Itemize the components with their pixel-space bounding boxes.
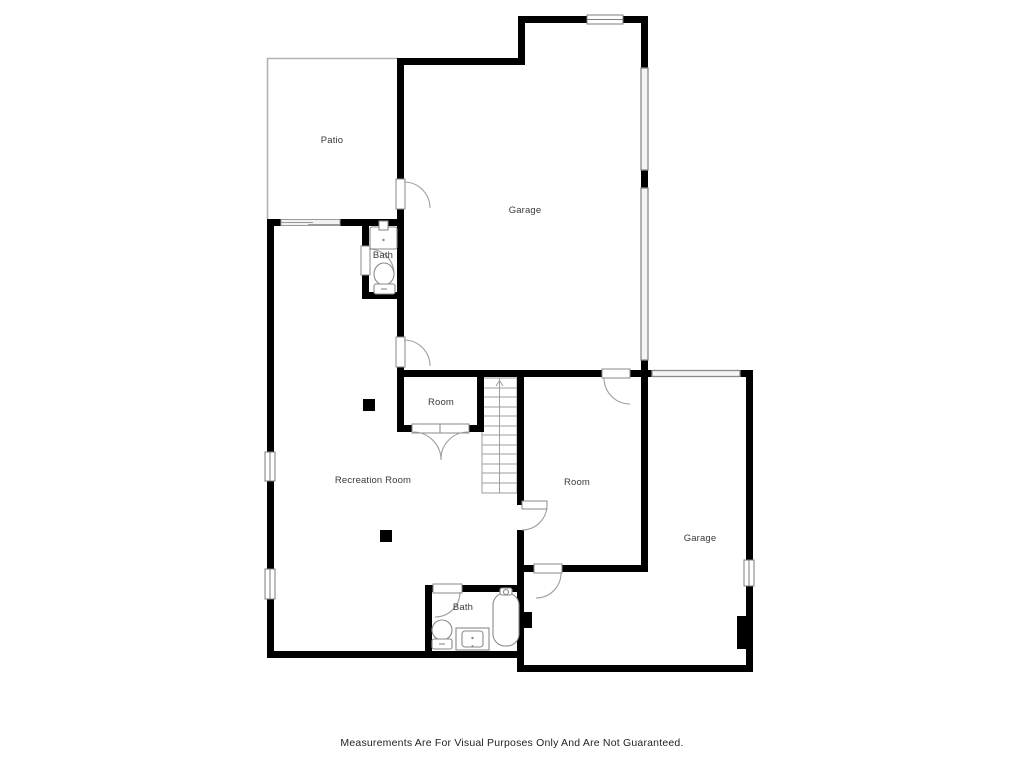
bath-pilaster bbox=[524, 612, 532, 628]
double-door-room-center bbox=[412, 424, 469, 460]
door-room-lower-top bbox=[602, 369, 630, 404]
door-garage-upper-1 bbox=[396, 179, 430, 209]
garage-door-upper-right-2 bbox=[641, 188, 648, 360]
bathtub-icon bbox=[493, 588, 519, 646]
bath-lower-label: Bath bbox=[453, 602, 473, 613]
walls bbox=[267, 16, 753, 672]
window-garage-lower-right bbox=[744, 560, 754, 586]
floor-plan-page: Patio Garage Bath Room Recreation Room R… bbox=[0, 0, 1024, 768]
room-lower-label: Room bbox=[564, 477, 590, 488]
recreation-room-label: Recreation Room bbox=[335, 475, 411, 486]
garage-doors bbox=[641, 68, 740, 377]
column-post bbox=[363, 399, 375, 411]
vanity-sink-icon bbox=[456, 628, 489, 650]
garage-upper-label: Garage bbox=[509, 205, 542, 216]
room-center-label: Room bbox=[428, 397, 454, 408]
disclaimer-text: Measurements Are For Visual Purposes Onl… bbox=[340, 737, 683, 749]
bath-upper-label: Bath bbox=[373, 250, 393, 261]
door-garage-upper-2 bbox=[396, 337, 430, 367]
windows bbox=[265, 15, 754, 599]
door-room-lower-left bbox=[522, 501, 547, 530]
column-post bbox=[380, 530, 392, 542]
toilet-icon bbox=[374, 263, 395, 294]
sliding-door-patio bbox=[281, 220, 340, 226]
patio-label: Patio bbox=[321, 135, 343, 146]
garage-pilaster bbox=[737, 616, 753, 649]
garage-door-upper-right-1 bbox=[641, 68, 648, 170]
door-room-lower-bottom bbox=[534, 564, 562, 598]
window-garage-top bbox=[587, 15, 623, 24]
garage-lower-label: Garage bbox=[684, 533, 717, 544]
toilet-icon bbox=[432, 620, 452, 649]
floor-plan-svg: Patio Garage Bath Room Recreation Room R… bbox=[0, 0, 1024, 768]
garage-door-lower-top bbox=[652, 371, 740, 377]
staircase bbox=[482, 378, 517, 493]
window-recreation-left-2 bbox=[265, 569, 275, 599]
window-recreation-left-1 bbox=[265, 452, 275, 481]
